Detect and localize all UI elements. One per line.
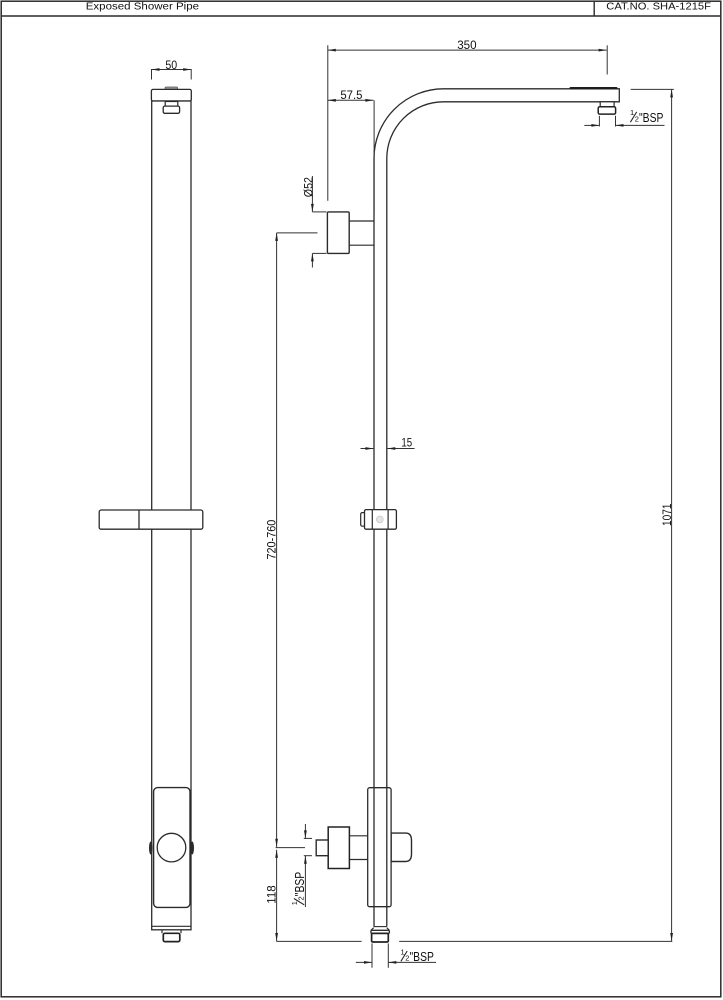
svg-text:50: 50 — [165, 58, 177, 72]
svg-text:1: 1 — [630, 108, 634, 117]
svg-text:1: 1 — [290, 901, 299, 905]
svg-text:Ø52: Ø52 — [302, 177, 316, 197]
svg-text:"BSP: "BSP — [639, 111, 663, 125]
svg-text:720-760: 720-760 — [264, 520, 278, 560]
svg-text:Exposed Shower Pipe: Exposed Shower Pipe — [86, 2, 200, 13]
svg-text:57.5: 57.5 — [340, 88, 362, 102]
svg-text:CAT.NO. SHA-1215F: CAT.NO. SHA-1215F — [606, 2, 711, 13]
svg-text:1: 1 — [401, 947, 405, 956]
svg-text:"BSP: "BSP — [410, 950, 434, 964]
svg-text:15: 15 — [401, 436, 412, 450]
svg-text:350: 350 — [457, 38, 476, 52]
svg-text:118: 118 — [265, 885, 279, 903]
svg-text:"BSP: "BSP — [293, 872, 307, 896]
svg-text:1071: 1071 — [660, 503, 674, 526]
